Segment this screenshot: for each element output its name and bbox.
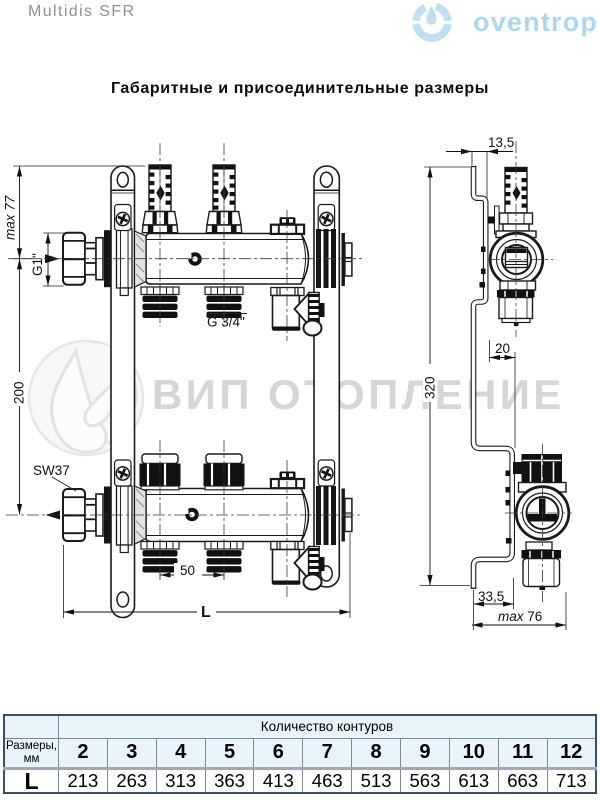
svg-text:200: 200 [12, 381, 27, 404]
svg-text:20: 20 [495, 341, 510, 356]
svg-text:SW37: SW37 [33, 463, 70, 478]
svg-text:33,5: 33,5 [478, 589, 504, 604]
svg-text:max 76: max 76 [498, 609, 542, 624]
svg-text:G 3/4": G 3/4" [207, 315, 245, 330]
svg-text:max 77: max 77 [3, 195, 18, 240]
svg-text:ВИП ОТОПЛЕНИЕ: ВИП ОТОПЛЕНИЕ [152, 371, 565, 418]
svg-text:320: 320 [423, 376, 438, 399]
svg-text:50: 50 [180, 563, 195, 578]
svg-text:13,5: 13,5 [488, 135, 514, 150]
svg-text:G1": G1" [30, 253, 45, 276]
svg-text:L: L [201, 604, 211, 621]
